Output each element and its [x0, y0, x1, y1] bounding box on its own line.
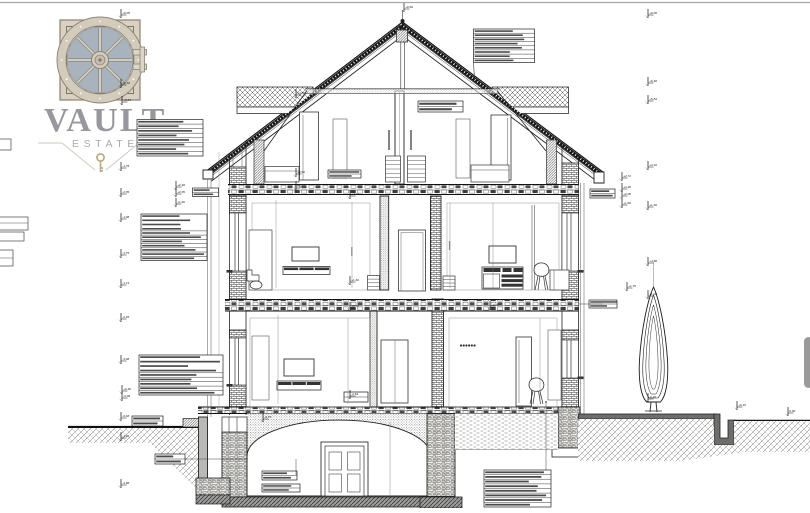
svg-text:+2.28: +2.28	[623, 185, 631, 189]
svg-text:+9.05: +9.05	[122, 11, 130, 15]
svg-text:-4.98: -4.98	[122, 481, 129, 485]
svg-text:+1.40: +1.40	[351, 278, 359, 282]
svg-text:+5.84: +5.84	[123, 98, 131, 102]
svg-text:-3.08: -3.08	[122, 357, 129, 361]
svg-text:+1.36: +1.36	[649, 203, 657, 207]
svg-text:+1.00: +1.00	[649, 292, 657, 296]
svg-text:ESTATE: ESTATE	[72, 138, 139, 150]
svg-text:+2.92: +2.92	[351, 192, 359, 196]
svg-text:-1.73: -1.73	[122, 281, 129, 285]
svg-text:-1.78: -1.78	[122, 164, 129, 168]
svg-text:+1.60: +1.60	[623, 201, 631, 205]
svg-text:+2.75: +2.75	[297, 183, 305, 187]
svg-text:+4.88: +4.88	[649, 259, 657, 263]
svg-text:-4.20: -4.20	[122, 434, 129, 438]
svg-text:-0.48: -0.48	[122, 414, 129, 418]
svg-text:+5.84: +5.84	[649, 97, 657, 101]
svg-text:+2.72: +2.72	[623, 174, 631, 178]
svg-text:+6.30: +6.30	[122, 81, 130, 85]
svg-text:-0.75: -0.75	[264, 415, 271, 419]
svg-text:+0.00: +0.00	[351, 304, 359, 308]
svg-text:+1.60: +1.60	[177, 200, 185, 204]
svg-text:-1.08: -1.08	[122, 215, 129, 219]
svg-text:+1.75: +1.75	[628, 284, 636, 288]
svg-text:+9.60: +9.60	[405, 5, 413, 9]
svg-text:+9.05: +9.05	[649, 11, 657, 15]
svg-text:+2.62: +2.62	[297, 170, 305, 174]
svg-text:-1.75: -1.75	[122, 251, 129, 255]
svg-text:+2.28: +2.28	[177, 183, 185, 187]
svg-text:+2.05: +2.05	[177, 190, 185, 194]
svg-text:+0.20: +0.20	[123, 387, 131, 391]
svg-text:-2.45: -2.45	[122, 315, 129, 319]
svg-text:0.00: 0.00	[789, 409, 795, 413]
svg-text:+4.80: +4.80	[297, 91, 305, 95]
svg-text:-2.62: -2.62	[351, 392, 358, 396]
svg-text:+2.05: +2.05	[623, 192, 631, 196]
svg-text:-2.05: -2.05	[122, 190, 129, 194]
svg-text:-0.06: -0.06	[123, 394, 130, 398]
svg-text:+3.10: +3.10	[649, 163, 657, 167]
svg-text:+0.15: +0.15	[738, 403, 746, 407]
svg-text:+6.48: +6.48	[649, 79, 657, 83]
svg-text:-0.20: -0.20	[649, 395, 656, 399]
svg-text:+0.00: +0.00	[491, 303, 499, 307]
